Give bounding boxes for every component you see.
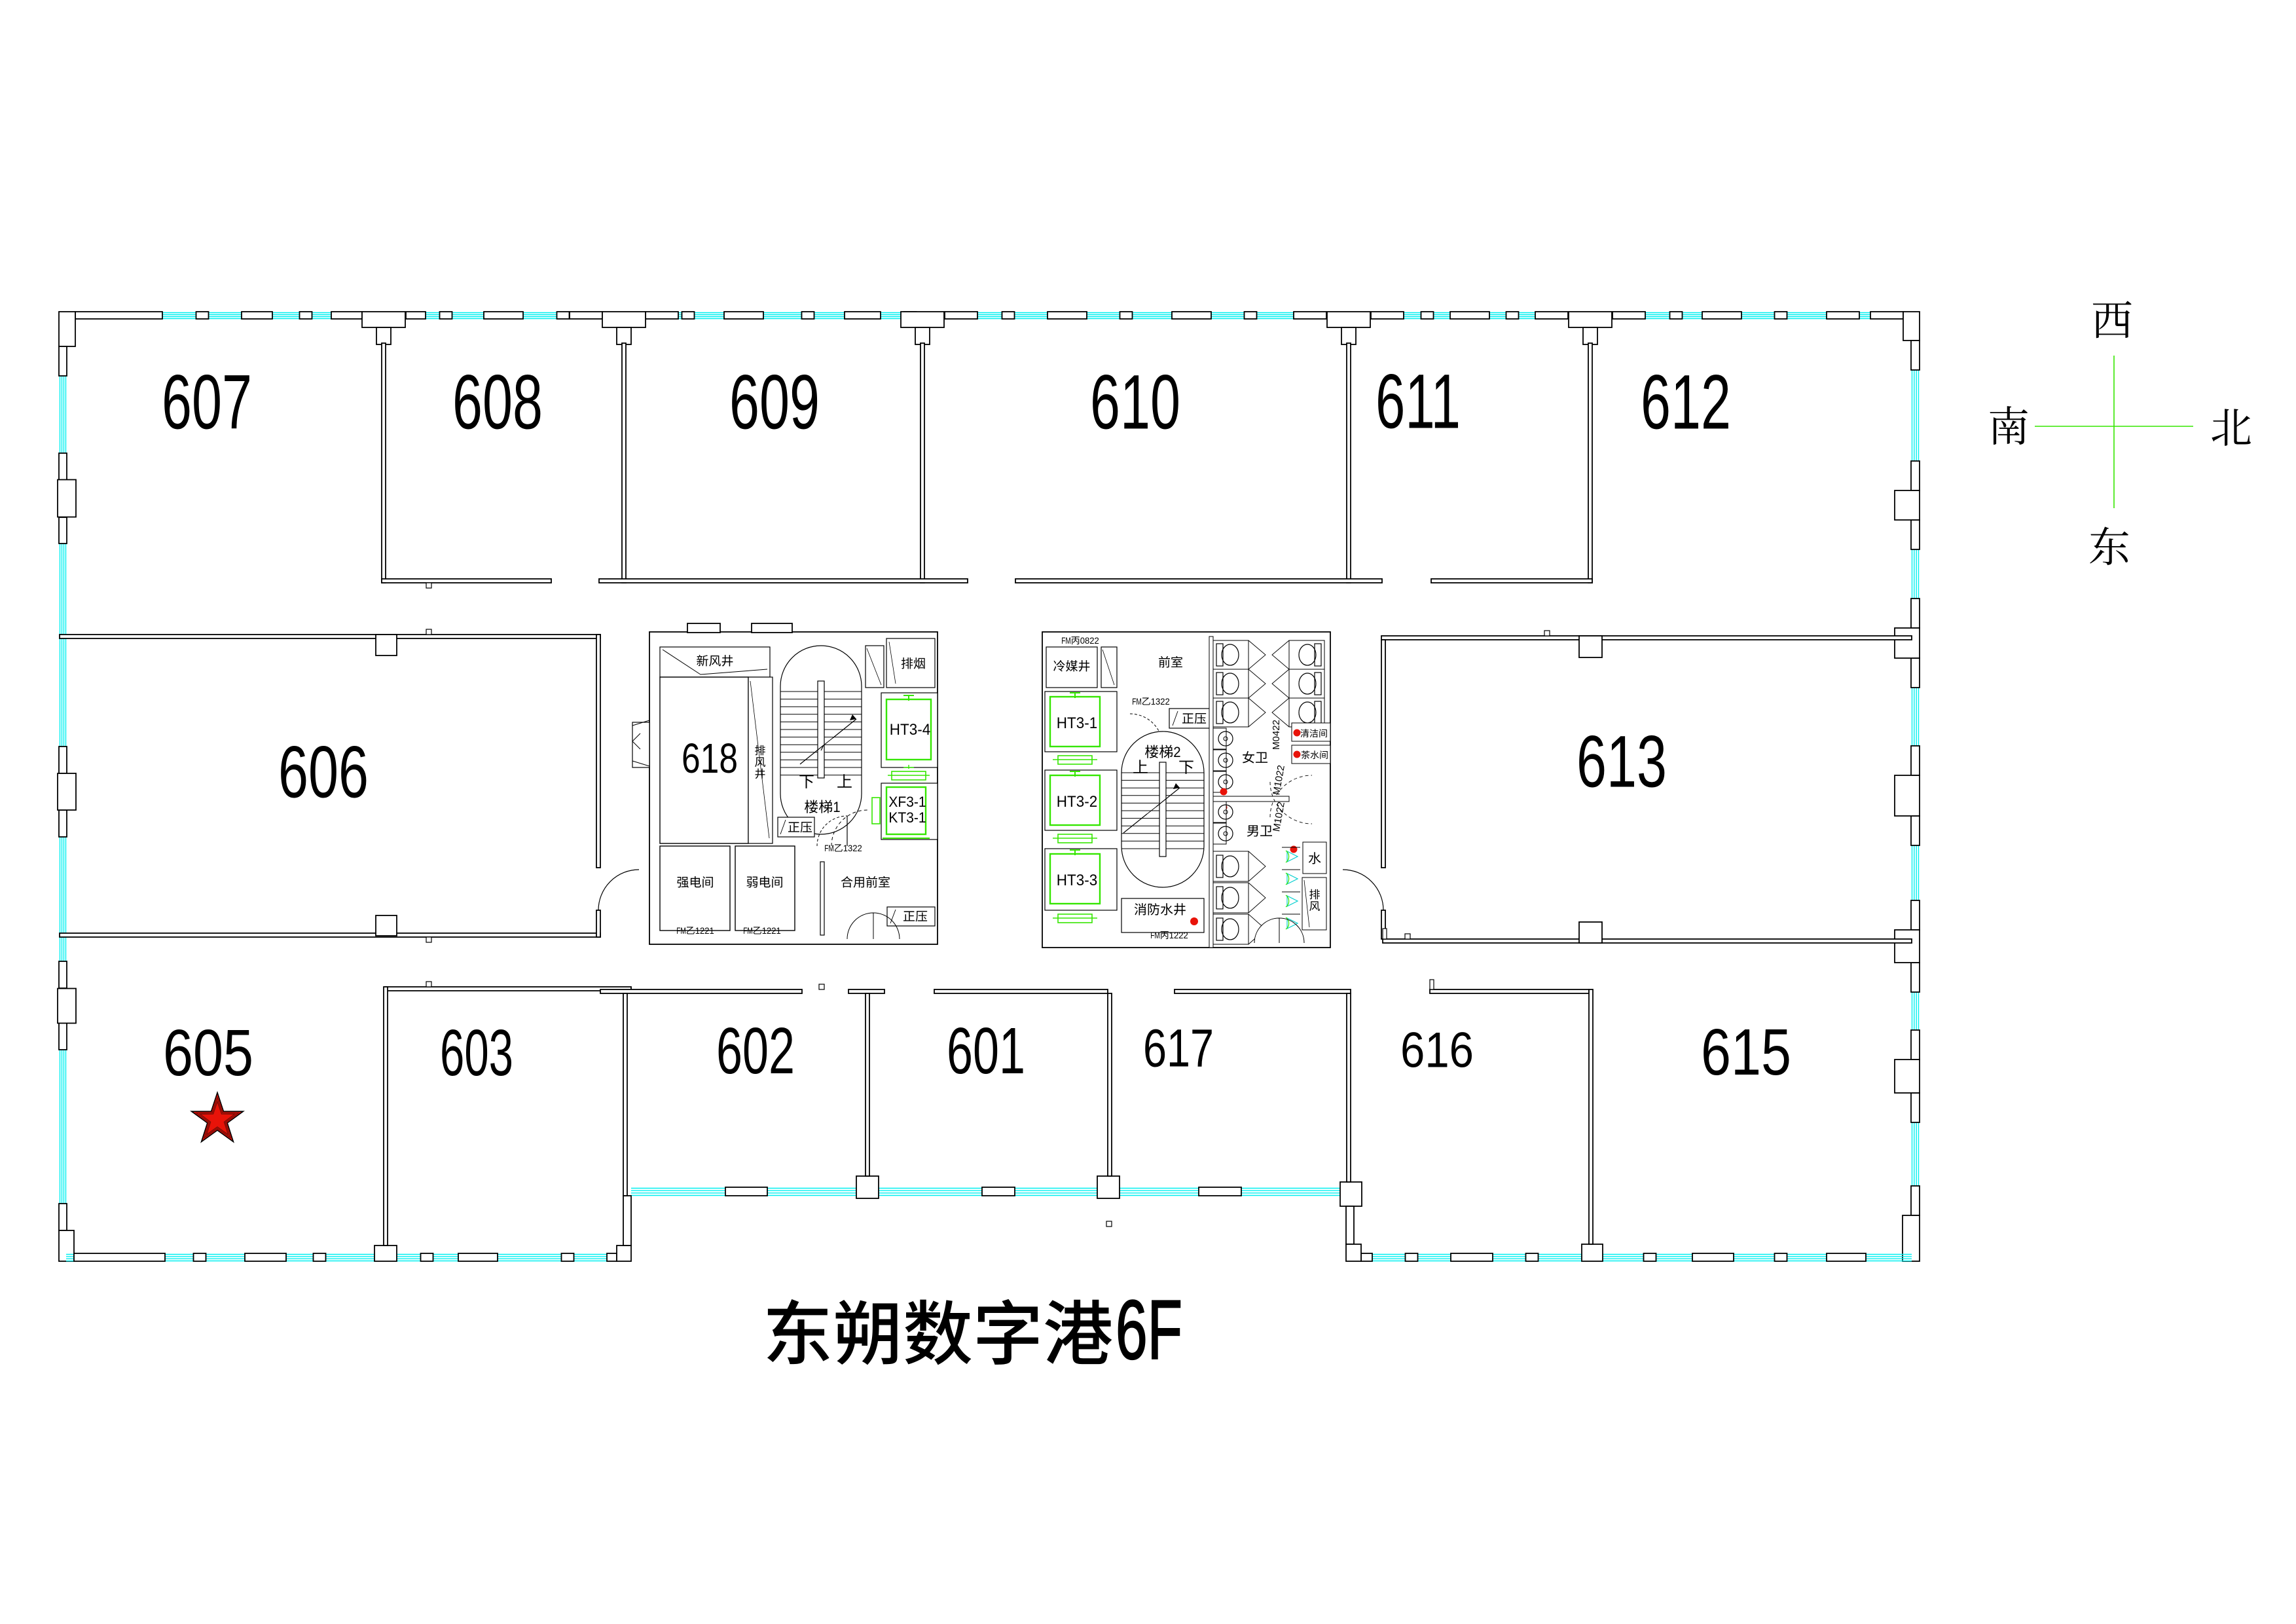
svg-text:612: 612 [1641,359,1731,445]
svg-text:606: 606 [278,731,369,813]
svg-text:XF3-1: XF3-1 [888,794,926,810]
svg-text:6F: 6F [1116,1283,1182,1377]
svg-text:616: 616 [1400,1022,1474,1078]
svg-text:FM: FM [824,843,834,853]
svg-text:613: 613 [1576,720,1667,802]
svg-text:1322: 1322 [843,843,862,853]
svg-text:M0422: M0422 [1271,720,1282,750]
svg-text:0822: 0822 [1080,635,1099,646]
svg-text:603: 603 [440,1016,513,1090]
svg-text:HT3-2: HT3-2 [1057,793,1097,811]
svg-text:618: 618 [682,735,738,782]
svg-text:HT3-4: HT3-4 [890,721,930,739]
svg-text:2: 2 [1173,744,1180,760]
svg-text:1221: 1221 [762,925,781,936]
svg-text:607: 607 [162,359,252,445]
svg-text:KT3-1: KT3-1 [888,809,926,826]
svg-text:608: 608 [452,359,543,445]
svg-text:FM: FM [1132,696,1142,707]
svg-text:617: 617 [1143,1019,1214,1079]
svg-text:1: 1 [833,799,840,815]
svg-text:1222: 1222 [1169,930,1188,940]
svg-text:602: 602 [716,1014,795,1088]
svg-text:HT3-1: HT3-1 [1057,714,1097,732]
svg-text:611: 611 [1376,358,1461,445]
svg-text:1322: 1322 [1151,696,1170,707]
svg-text:HT3-3: HT3-3 [1057,872,1097,889]
svg-text:615: 615 [1701,1016,1791,1089]
svg-text:601: 601 [947,1014,1025,1088]
svg-text:610: 610 [1090,359,1180,445]
svg-text:609: 609 [729,359,820,445]
svg-text:FM: FM [676,925,686,936]
svg-text:1221: 1221 [695,925,714,936]
svg-text:605: 605 [163,1016,253,1090]
svg-text:FM: FM [1061,635,1071,646]
svg-text:FM: FM [1150,930,1160,940]
svg-text:FM: FM [743,925,753,936]
